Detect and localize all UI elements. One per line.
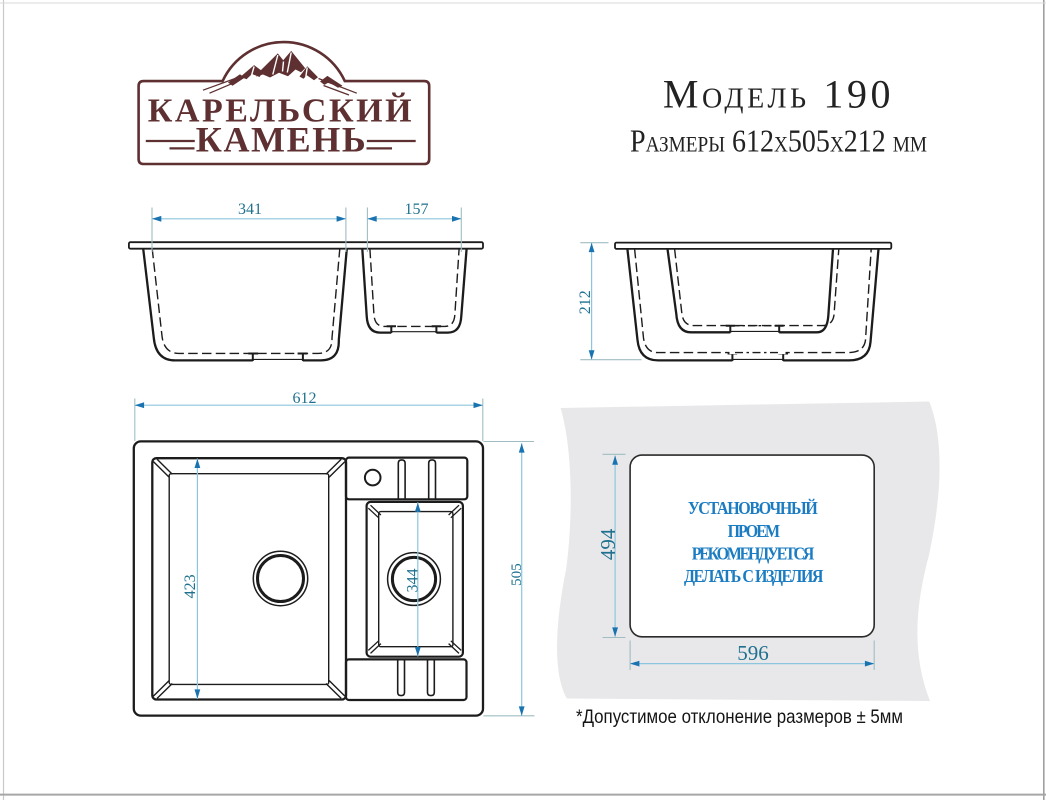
svg-text:Модель 190: Модель 190	[663, 72, 894, 117]
svg-text:344: 344	[404, 569, 421, 593]
svg-text:УСТАНОВОЧНЫЙ: УСТАНОВОЧНЫЙ	[688, 498, 818, 518]
svg-text:612: 612	[293, 390, 317, 407]
svg-text:596: 596	[737, 641, 769, 665]
svg-text:212: 212	[577, 290, 594, 314]
svg-text:341: 341	[238, 201, 262, 218]
svg-text:ДЕЛАТЬ С ИЗДЕЛИЯ: ДЕЛАТЬ С ИЗДЕЛИЯ	[684, 566, 823, 586]
svg-text:*Допустимое отклонение размеро: *Допустимое отклонение размеров ± 5мм	[576, 706, 903, 728]
svg-text:505: 505	[508, 563, 525, 586]
svg-text:РЕКОМЕНДУЕТСЯ: РЕКОМЕНДУЕТСЯ	[692, 544, 815, 564]
svg-text:494: 494	[596, 528, 620, 560]
svg-text:КАМЕНЬ: КАМЕНЬ	[196, 120, 368, 160]
svg-text:423: 423	[182, 574, 199, 598]
svg-text:ПРОЕМ: ПРОЕМ	[728, 521, 781, 541]
svg-text:157: 157	[405, 201, 429, 218]
svg-text:Размеры 612х505х212 мм: Размеры 612х505х212 мм	[630, 122, 927, 158]
